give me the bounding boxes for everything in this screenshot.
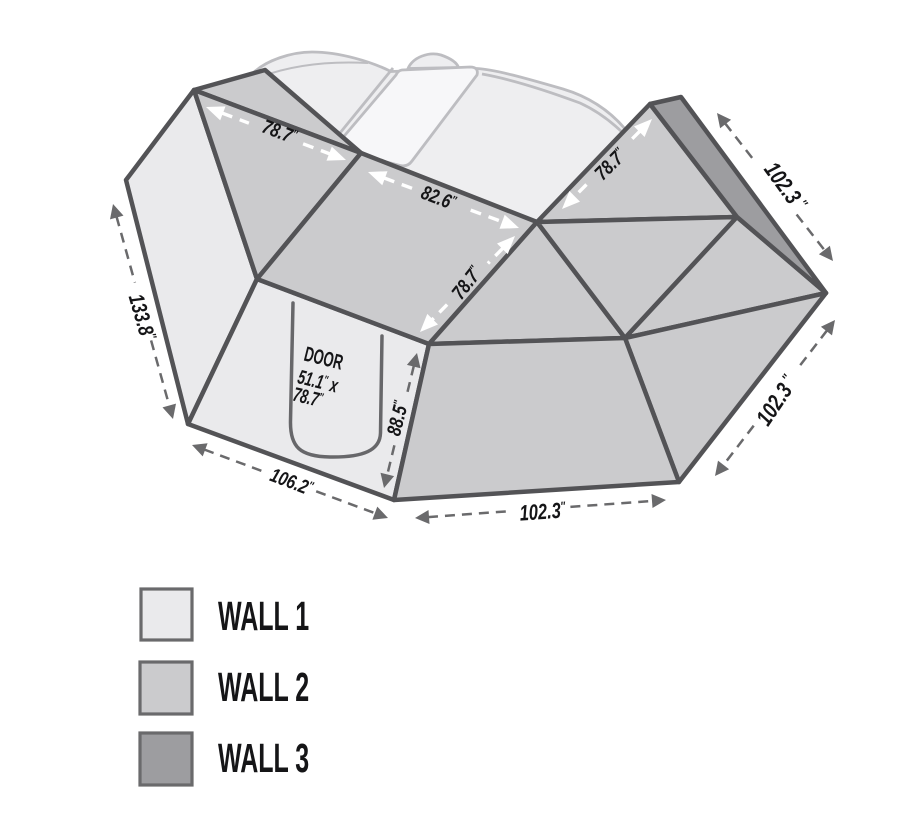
svg-text:WALL 1: WALL 1 (218, 594, 309, 640)
svg-text:102.3″: 102.3″ (519, 498, 567, 526)
svg-text:WALL 2: WALL 2 (218, 665, 309, 711)
svg-text:WALL 3: WALL 3 (218, 736, 309, 782)
svg-text:133.8″: 133.8″ (123, 292, 159, 344)
svg-text:102.3 ″: 102.3 ″ (759, 157, 812, 216)
